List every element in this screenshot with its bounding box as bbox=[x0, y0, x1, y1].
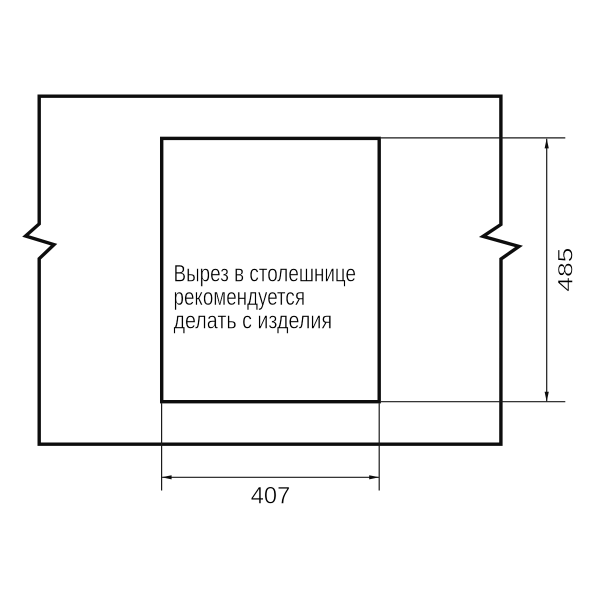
svg-text:делать с изделия: делать с изделия bbox=[174, 308, 333, 335]
svg-text:407: 407 bbox=[251, 483, 291, 510]
svg-text:485: 485 bbox=[554, 248, 578, 292]
